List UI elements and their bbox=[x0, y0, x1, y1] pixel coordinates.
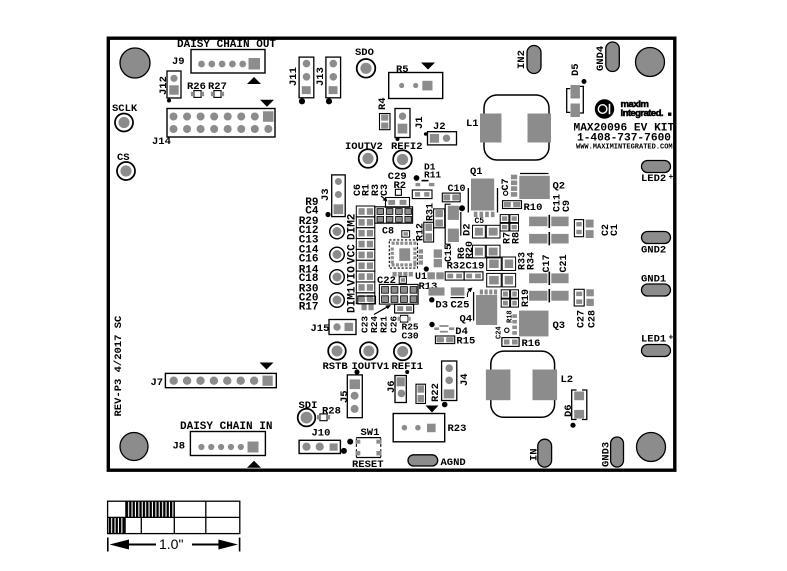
svg-text:R32: R32 bbox=[447, 261, 466, 273]
svg-text:R20: R20 bbox=[465, 241, 476, 259]
svg-text:J6: J6 bbox=[386, 380, 398, 393]
svg-text:1.0": 1.0" bbox=[159, 536, 183, 552]
svg-text:GND2: GND2 bbox=[641, 245, 666, 257]
svg-text:R23: R23 bbox=[448, 423, 467, 435]
svg-text:R5: R5 bbox=[396, 64, 409, 76]
svg-text:J4: J4 bbox=[459, 373, 471, 386]
svg-text:C9: C9 bbox=[562, 200, 573, 212]
svg-text:R15: R15 bbox=[456, 336, 475, 348]
svg-text:R17: R17 bbox=[299, 302, 319, 314]
svg-text:C19: C19 bbox=[466, 261, 485, 273]
svg-text:J1: J1 bbox=[414, 116, 426, 129]
svg-text:J13: J13 bbox=[315, 67, 327, 86]
svg-text:J15: J15 bbox=[311, 323, 330, 335]
svg-text:Q3: Q3 bbox=[553, 320, 566, 332]
svg-text:R12: R12 bbox=[416, 223, 427, 241]
svg-text:R28: R28 bbox=[322, 406, 341, 418]
svg-text:C8: C8 bbox=[382, 227, 394, 238]
svg-text:C21: C21 bbox=[559, 254, 570, 272]
svg-text:C25: C25 bbox=[451, 300, 470, 312]
svg-text:LED2: LED2 bbox=[641, 173, 666, 185]
svg-text:J8: J8 bbox=[173, 441, 186, 453]
svg-text:REV-P3 4/2017 SC: REV-P3 4/2017 SC bbox=[113, 315, 125, 417]
svg-text:SDO: SDO bbox=[355, 47, 374, 59]
svg-text:C26: C26 bbox=[389, 316, 400, 333]
svg-text:C30: C30 bbox=[402, 331, 419, 342]
svg-text:C3: C3 bbox=[380, 184, 391, 196]
svg-text:L1: L1 bbox=[466, 118, 479, 130]
svg-text:+: + bbox=[669, 173, 674, 182]
svg-text:C7: C7 bbox=[501, 178, 512, 190]
svg-text:C5: C5 bbox=[475, 217, 485, 226]
svg-text:R34: R34 bbox=[527, 252, 538, 270]
svg-text:R19: R19 bbox=[521, 289, 532, 307]
svg-text:J10: J10 bbox=[312, 428, 331, 440]
svg-text:IN2: IN2 bbox=[516, 50, 528, 69]
svg-text:AGND: AGND bbox=[441, 457, 466, 469]
svg-text:Q4: Q4 bbox=[460, 314, 473, 326]
svg-text:J14: J14 bbox=[152, 136, 171, 148]
svg-text:R4: R4 bbox=[377, 97, 389, 110]
svg-text:D5: D5 bbox=[570, 63, 582, 76]
svg-text:C17: C17 bbox=[542, 254, 553, 272]
svg-text:D6: D6 bbox=[563, 404, 575, 417]
svg-text:J7: J7 bbox=[151, 377, 164, 389]
svg-text:R16: R16 bbox=[522, 338, 541, 350]
svg-text:RSTB: RSTB bbox=[323, 361, 349, 373]
svg-text:R31: R31 bbox=[426, 203, 437, 221]
svg-text:L2: L2 bbox=[561, 374, 574, 386]
svg-text:R8: R8 bbox=[512, 232, 523, 244]
svg-text:J5: J5 bbox=[339, 390, 351, 403]
svg-text:J9: J9 bbox=[172, 56, 185, 68]
svg-text:J11: J11 bbox=[288, 67, 300, 86]
svg-text:C1: C1 bbox=[610, 224, 621, 236]
svg-text:J3: J3 bbox=[320, 188, 332, 201]
svg-text:integrated.: integrated. bbox=[621, 108, 663, 119]
svg-text:Q2: Q2 bbox=[553, 181, 566, 193]
svg-text:Q1: Q1 bbox=[470, 166, 483, 178]
svg-text:C15: C15 bbox=[444, 244, 455, 262]
svg-text:R10: R10 bbox=[524, 202, 543, 214]
svg-text:C27: C27 bbox=[577, 310, 588, 328]
svg-text:WWW.MAXIMINTEGRATED.COM: WWW.MAXIMINTEGRATED.COM bbox=[576, 144, 673, 152]
svg-text:R26: R26 bbox=[187, 81, 206, 93]
svg-text:R27: R27 bbox=[208, 81, 227, 93]
svg-text:C28: C28 bbox=[588, 310, 599, 328]
svg-text:R22: R22 bbox=[430, 383, 442, 402]
svg-text:LED1: LED1 bbox=[641, 334, 666, 346]
svg-text:RESET: RESET bbox=[352, 459, 384, 471]
svg-text:D2: D2 bbox=[462, 223, 474, 236]
svg-text:J12: J12 bbox=[158, 76, 170, 95]
svg-text:+: + bbox=[669, 334, 674, 343]
svg-text:R11: R11 bbox=[424, 170, 441, 181]
svg-text:D3: D3 bbox=[435, 300, 448, 312]
